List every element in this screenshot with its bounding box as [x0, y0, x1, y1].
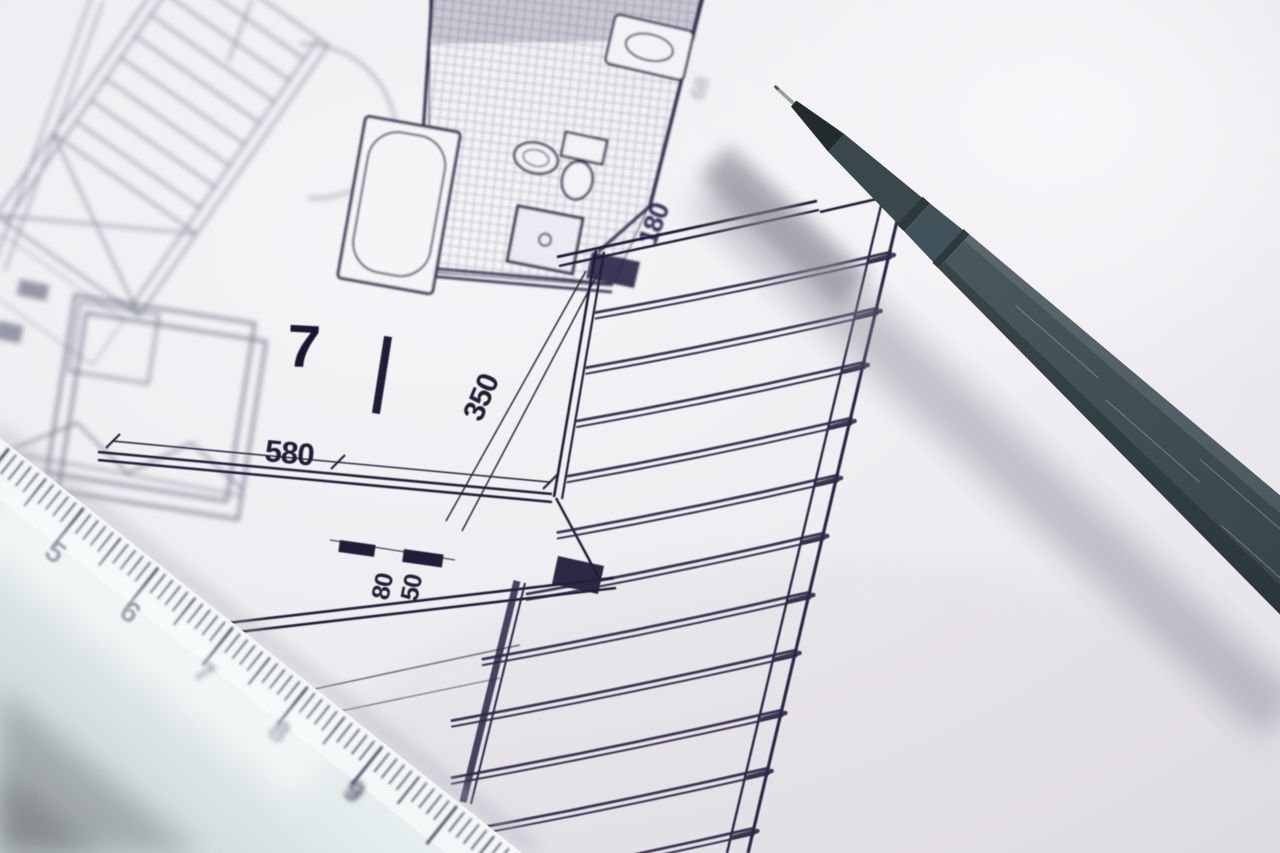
dim-580-label: 580	[263, 433, 315, 473]
floorplan-photo: 68	[0, 0, 1280, 853]
room-number-label: 7	[285, 312, 322, 381]
